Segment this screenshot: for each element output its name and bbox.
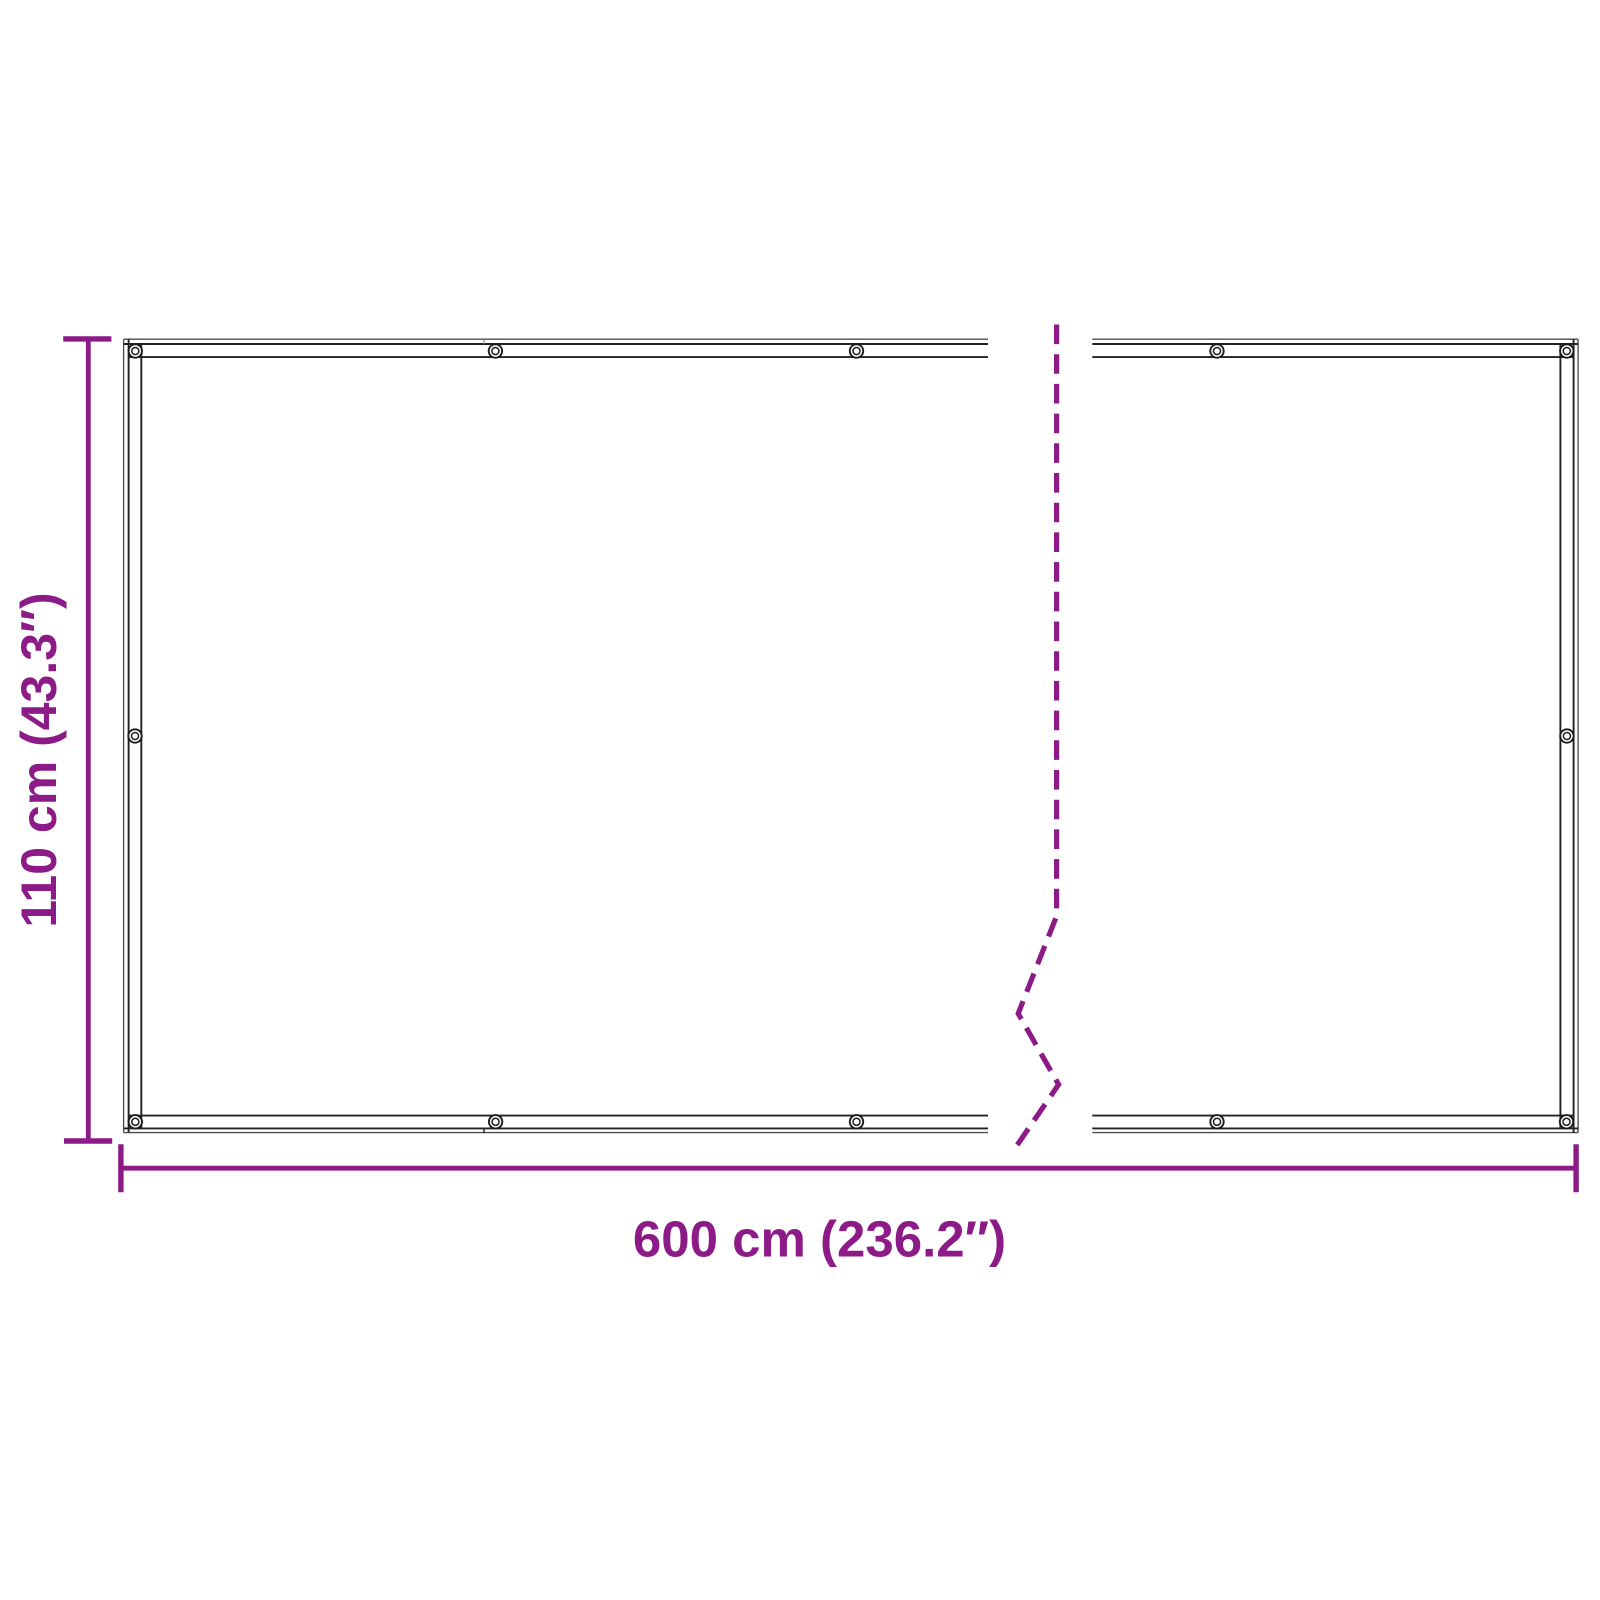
svg-text:600 cm (236.2″): 600 cm (236.2″) bbox=[633, 1210, 1006, 1267]
svg-text:110 cm (43.3″): 110 cm (43.3″) bbox=[11, 592, 67, 927]
